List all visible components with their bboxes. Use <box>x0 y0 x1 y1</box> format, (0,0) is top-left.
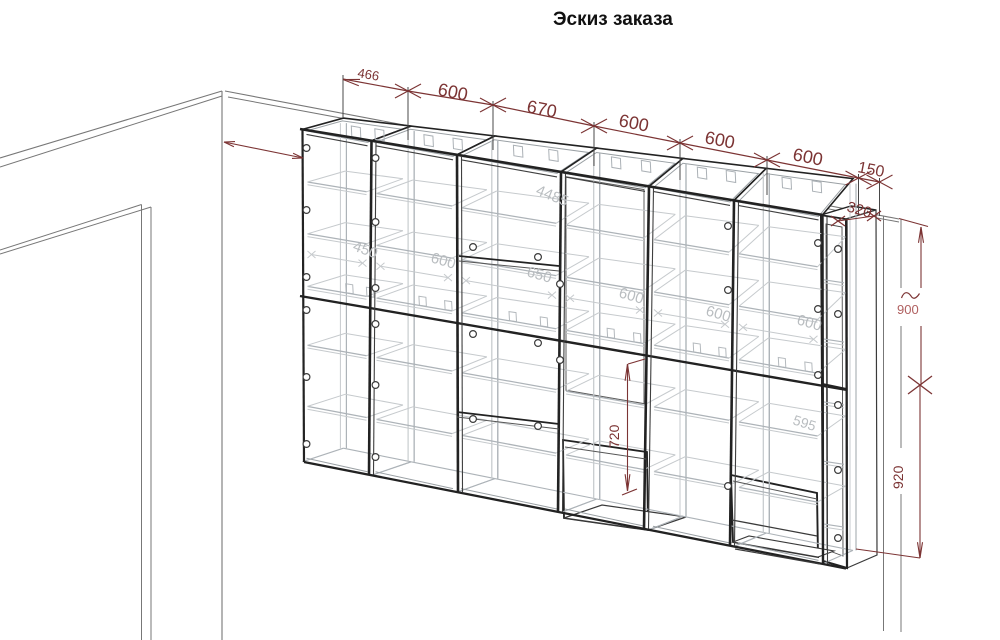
svg-text:900: 900 <box>897 302 919 317</box>
svg-text:720: 720 <box>606 424 622 448</box>
svg-text:920: 920 <box>890 465 906 489</box>
